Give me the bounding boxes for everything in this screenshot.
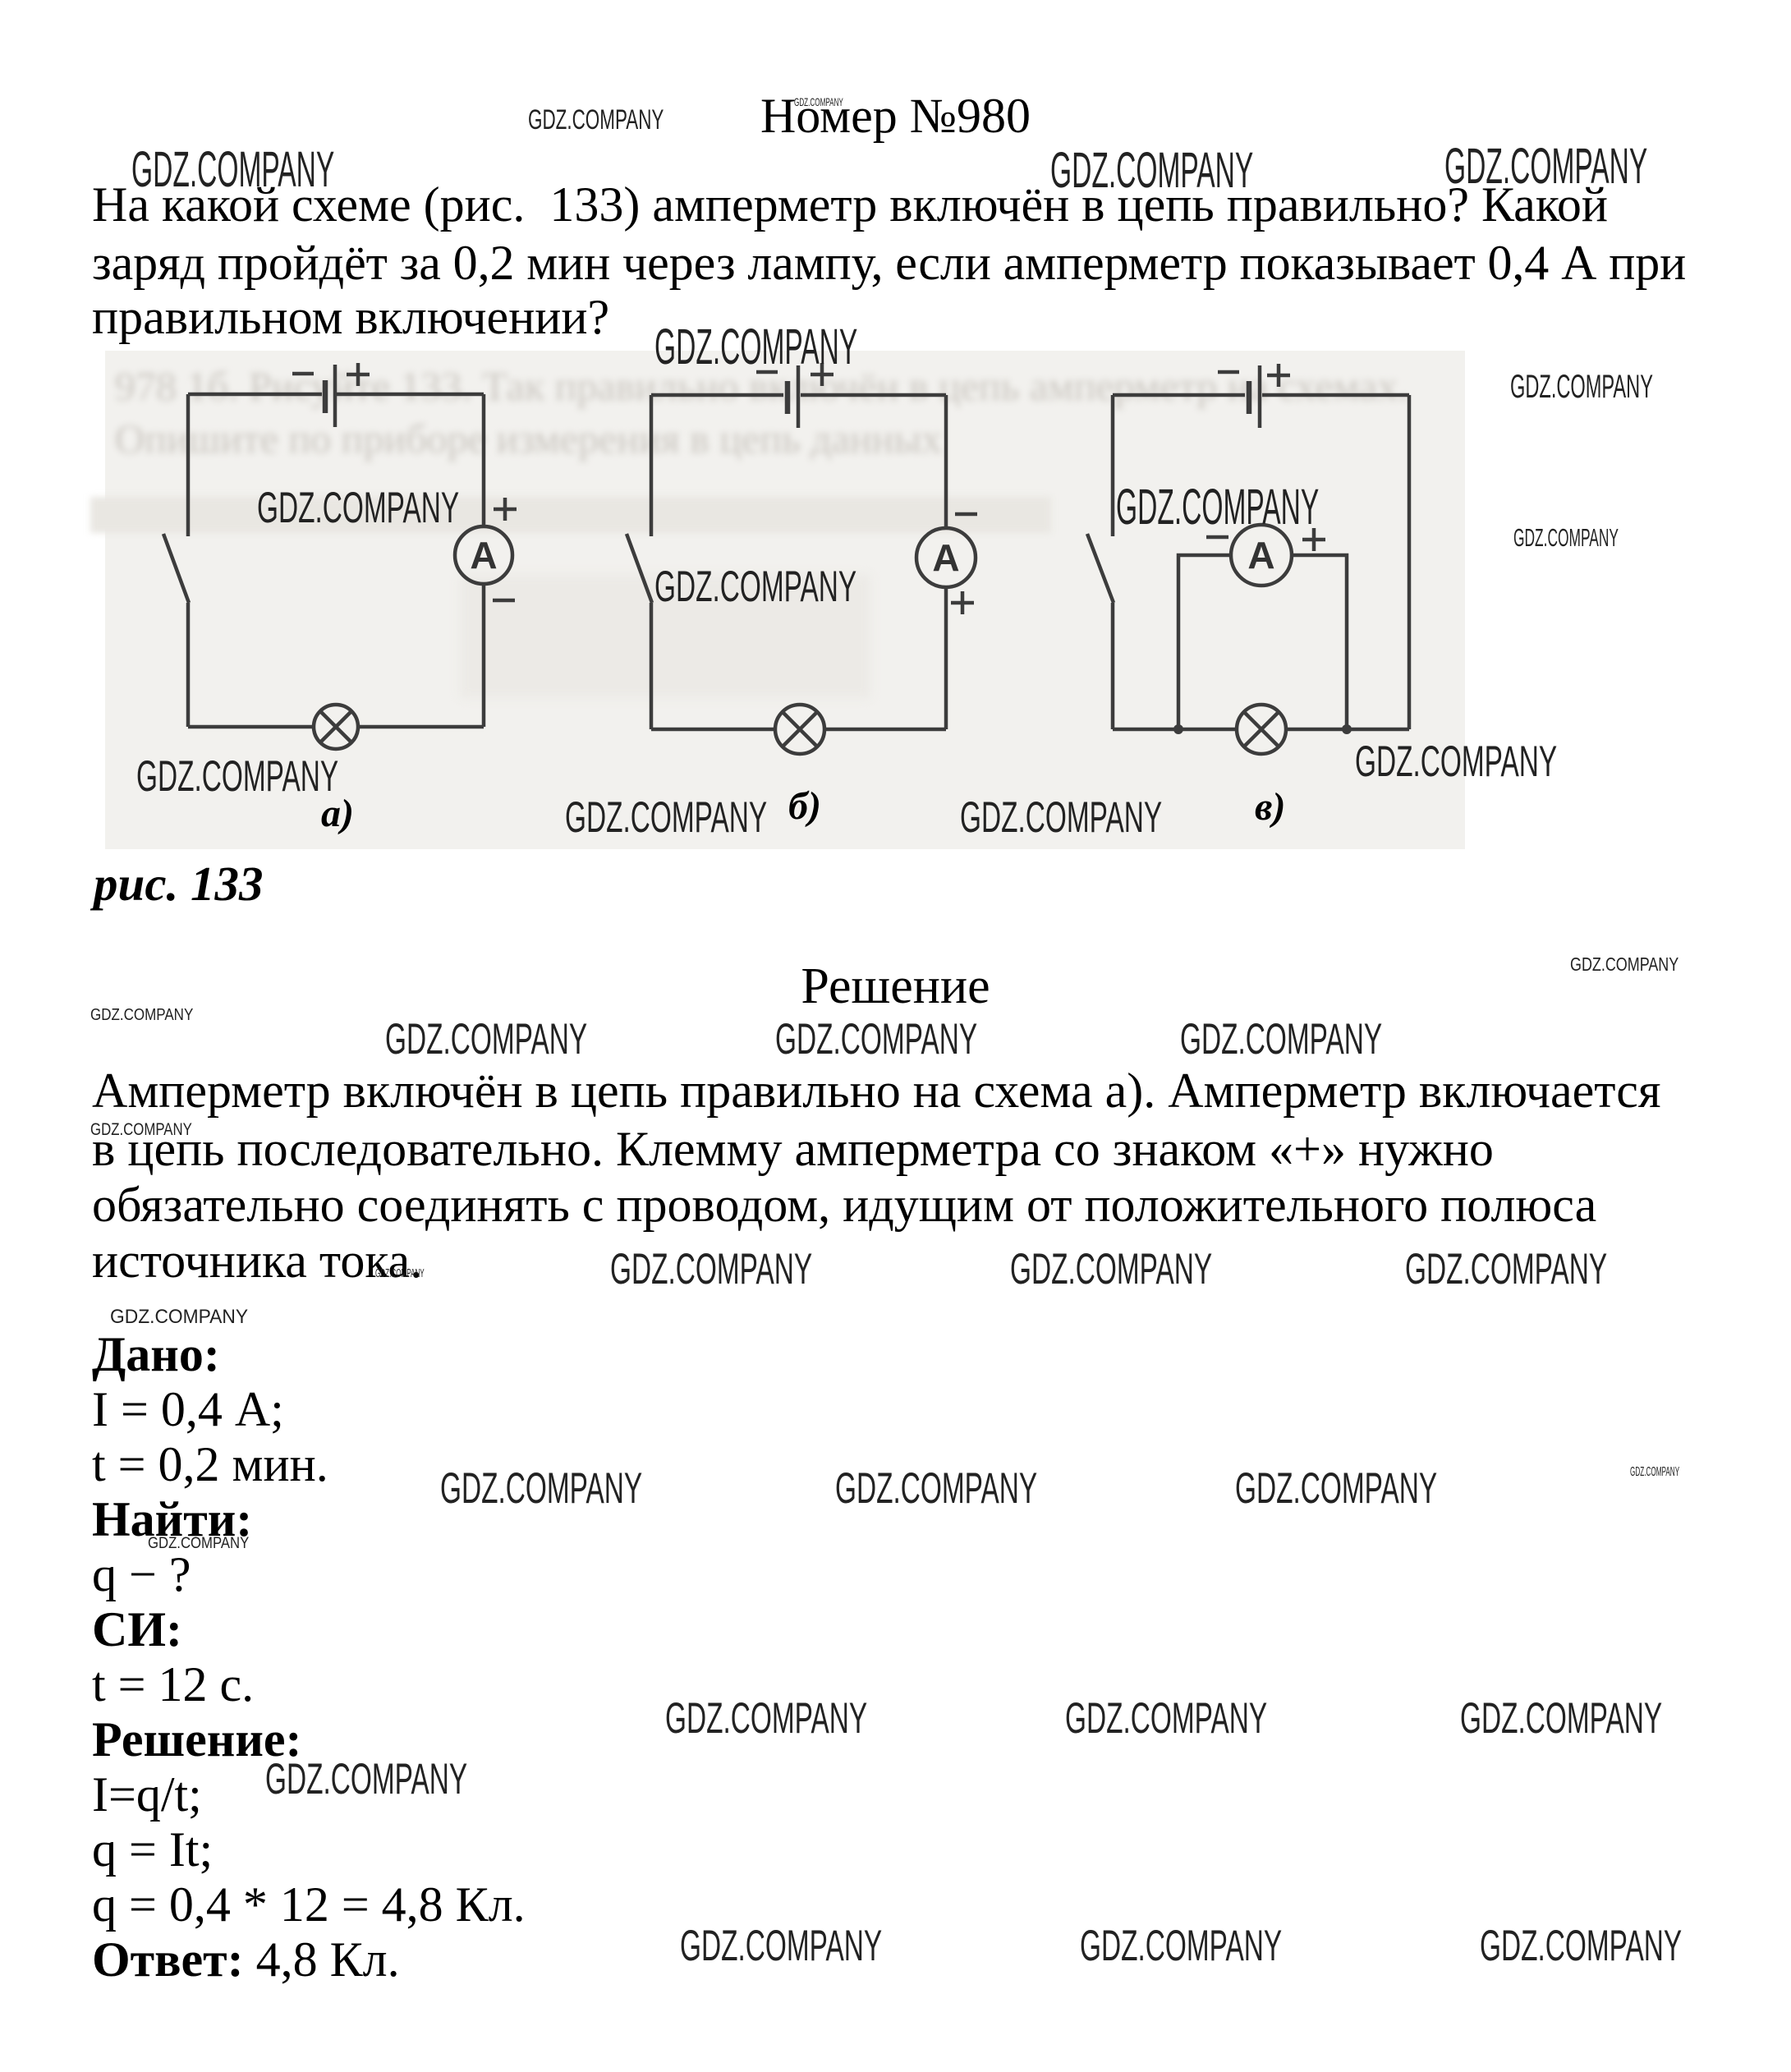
svg-text:A: A (1247, 534, 1274, 577)
svg-text:A: A (470, 534, 497, 577)
svg-text:A: A (932, 536, 959, 579)
